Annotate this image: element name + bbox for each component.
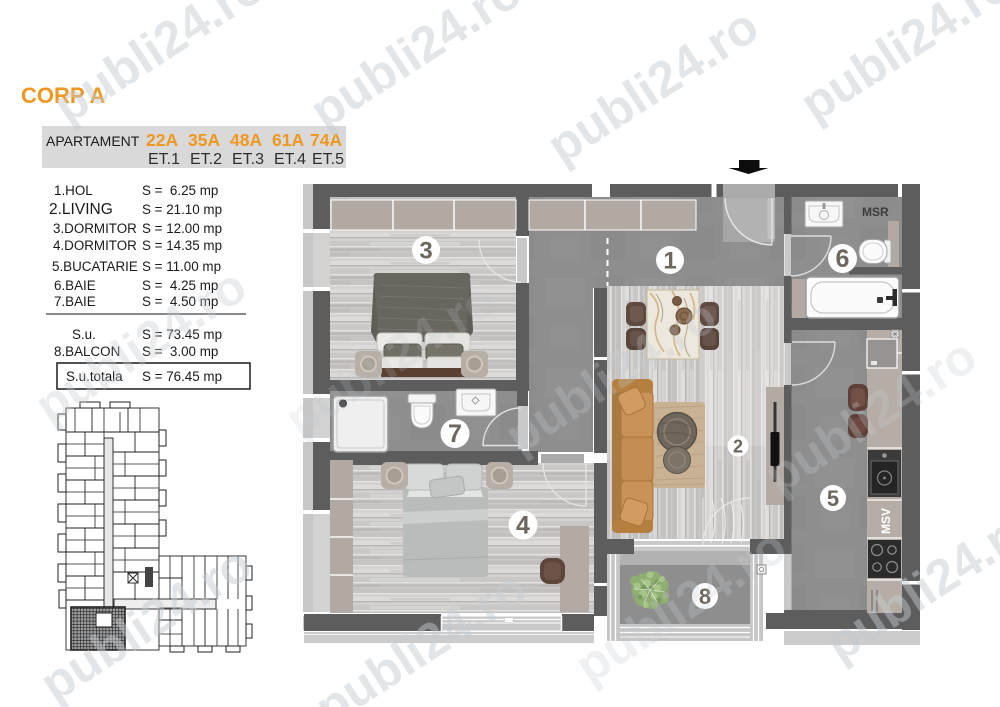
svg-text:publi24.ro: publi24.ro <box>790 0 1000 132</box>
svg-text:7: 7 <box>448 420 462 448</box>
svg-text:S = 12.00 mp: S = 12.00 mp <box>142 221 222 236</box>
svg-text:6: 6 <box>836 245 850 273</box>
svg-text:MSR: MSR <box>862 205 889 219</box>
svg-text:5.BUCATARIE: 5.BUCATARIE <box>52 259 138 274</box>
svg-text:ET.2: ET.2 <box>190 151 222 168</box>
svg-text:35A: 35A <box>188 130 220 150</box>
svg-text:7.BAIE: 7.BAIE <box>54 294 96 309</box>
svg-text:1.HOL: 1.HOL <box>54 183 93 198</box>
svg-text:ET.5: ET.5 <box>312 151 344 168</box>
svg-text:S = 76.45 mp: S = 76.45 mp <box>142 369 222 384</box>
svg-text:S = 14.35 mp: S = 14.35 mp <box>142 238 222 253</box>
svg-text:61A: 61A <box>272 130 304 150</box>
svg-text:APARTAMENT: APARTAMENT <box>46 133 140 149</box>
svg-text:ET.3: ET.3 <box>232 151 264 168</box>
svg-text:4.DORMITOR: 4.DORMITOR <box>53 238 137 253</box>
svg-text:publi24.ro: publi24.ro <box>43 0 274 134</box>
svg-text:ET.4: ET.4 <box>274 151 306 168</box>
svg-text:6.BAIE: 6.BAIE <box>54 278 96 293</box>
svg-text:S = 6.25 mp: S = 6.25 mp <box>142 183 218 198</box>
svg-text:publi24.ro: publi24.ro <box>537 0 768 174</box>
svg-text:3.DORMITOR: 3.DORMITOR <box>53 221 137 236</box>
svg-text:48A: 48A <box>230 130 262 150</box>
svg-text:MSV: MSV <box>879 508 893 534</box>
svg-text:3: 3 <box>419 238 432 265</box>
svg-text:2.LIVING: 2.LIVING <box>49 201 113 218</box>
svg-text:1: 1 <box>663 248 676 275</box>
svg-text:S = 21.10 mp: S = 21.10 mp <box>142 202 222 217</box>
svg-text:2: 2 <box>733 437 743 457</box>
svg-text:S.u.: S.u. <box>72 327 96 342</box>
svg-text:4: 4 <box>516 512 530 540</box>
svg-text:ET.1: ET.1 <box>148 151 180 168</box>
svg-text:5: 5 <box>827 486 839 511</box>
svg-text:22A: 22A <box>146 130 178 150</box>
svg-text:publi24.ro: publi24.ro <box>300 0 531 139</box>
